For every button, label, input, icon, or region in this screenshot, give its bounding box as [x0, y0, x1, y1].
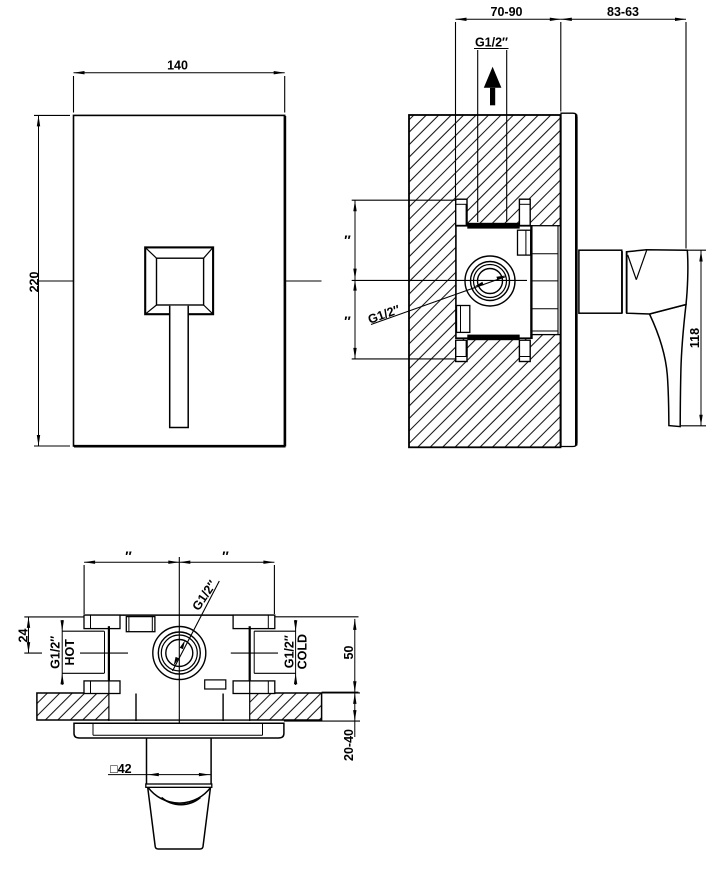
svg-text:24: 24 [17, 629, 31, 643]
svg-text:G1/2″: G1/2″ [475, 36, 508, 50]
svg-text:″: ″ [344, 232, 351, 248]
svg-text:70-90: 70-90 [491, 5, 523, 19]
svg-text:118: 118 [688, 328, 702, 348]
svg-text:″: ″ [344, 313, 351, 329]
svg-text:G1/2″: G1/2″ [283, 635, 297, 668]
svg-text:HOT: HOT [63, 639, 77, 666]
svg-text:G1/2″: G1/2″ [49, 636, 63, 669]
svg-text:220: 220 [27, 272, 41, 293]
svg-text:COLD: COLD [296, 634, 310, 669]
svg-text:″: ″ [125, 548, 132, 564]
svg-text:140: 140 [167, 59, 188, 73]
svg-text:20-40: 20-40 [342, 729, 356, 761]
svg-text:□42: □42 [110, 762, 132, 776]
svg-text:″: ″ [222, 548, 229, 564]
svg-text:83-63: 83-63 [607, 5, 639, 19]
svg-text:50: 50 [342, 646, 356, 660]
